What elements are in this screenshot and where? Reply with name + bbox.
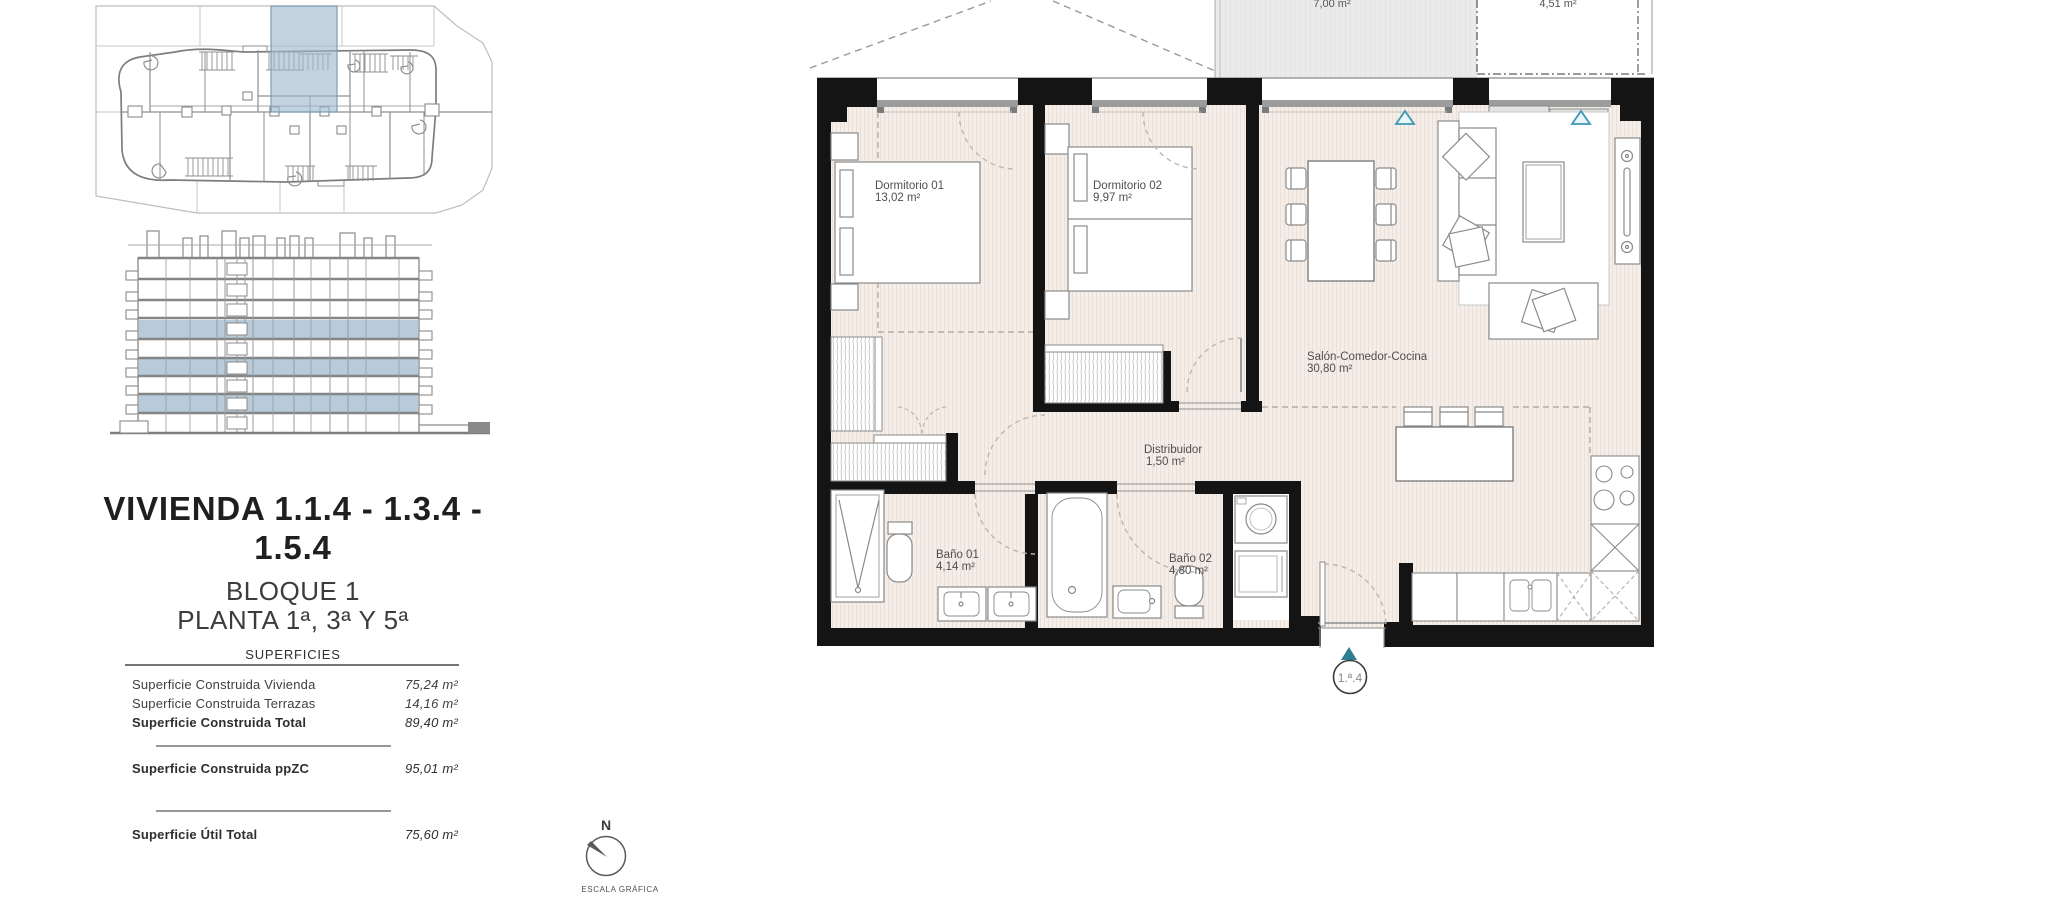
svg-text:89,40 m²: 89,40 m² (405, 715, 458, 730)
svg-text:Superficie Útil Total: Superficie Útil Total (132, 827, 257, 842)
svg-text:Distribuidor: Distribuidor (1144, 444, 1202, 456)
svg-text:SUPERFICIES: SUPERFICIES (245, 647, 340, 662)
svg-text:Dormitorio 02: Dormitorio 02 (1093, 180, 1162, 192)
svg-text:Superficie Construida Vivienda: Superficie Construida Vivienda (132, 677, 316, 692)
svg-text:N: N (601, 817, 611, 833)
svg-text:95,01 m²: 95,01 m² (405, 761, 458, 776)
svg-text:9,97 m²: 9,97 m² (1093, 192, 1132, 204)
svg-text:ESCALA GRÁFICA: ESCALA GRÁFICA (581, 885, 658, 894)
svg-text:4,51 m²: 4,51 m² (1539, 0, 1577, 10)
svg-text:7,00 m²: 7,00 m² (1313, 0, 1351, 10)
svg-text:75,60 m²: 75,60 m² (405, 827, 458, 842)
svg-text:Baño 01: Baño 01 (936, 549, 979, 561)
svg-text:14,16 m²: 14,16 m² (405, 696, 458, 711)
svg-text:13,02 m²: 13,02 m² (875, 192, 921, 204)
svg-text:Superficie Construida Terrazas: Superficie Construida Terrazas (132, 696, 316, 711)
svg-text:Baño 02: Baño 02 (1169, 553, 1212, 565)
svg-text:Dormitorio 01: Dormitorio 01 (875, 180, 944, 192)
svg-text:4,80 m²: 4,80 m² (1169, 565, 1208, 577)
svg-text:1,50 m²: 1,50 m² (1146, 456, 1185, 468)
svg-text:30,80 m²: 30,80 m² (1307, 363, 1353, 375)
svg-text:Salón-Comedor-Cocina: Salón-Comedor-Cocina (1307, 351, 1428, 363)
svg-text:75,24 m²: 75,24 m² (405, 677, 458, 692)
svg-text:Superficie Construida ppZC: Superficie Construida ppZC (132, 761, 310, 776)
svg-text:1.ª.4: 1.ª.4 (1338, 671, 1363, 685)
svg-text:1.5.4: 1.5.4 (254, 529, 331, 566)
svg-text:Superficie Construida Total: Superficie Construida Total (132, 715, 306, 730)
svg-text:VIVIENDA 1.1.4 - 1.3.4 -: VIVIENDA 1.1.4 - 1.3.4 - (103, 490, 482, 527)
svg-text:4,14 m²: 4,14 m² (936, 561, 975, 573)
svg-text:BLOQUE 1: BLOQUE 1 (226, 576, 360, 606)
svg-text:PLANTA 1ª, 3ª Y 5ª: PLANTA 1ª, 3ª Y 5ª (177, 605, 409, 635)
